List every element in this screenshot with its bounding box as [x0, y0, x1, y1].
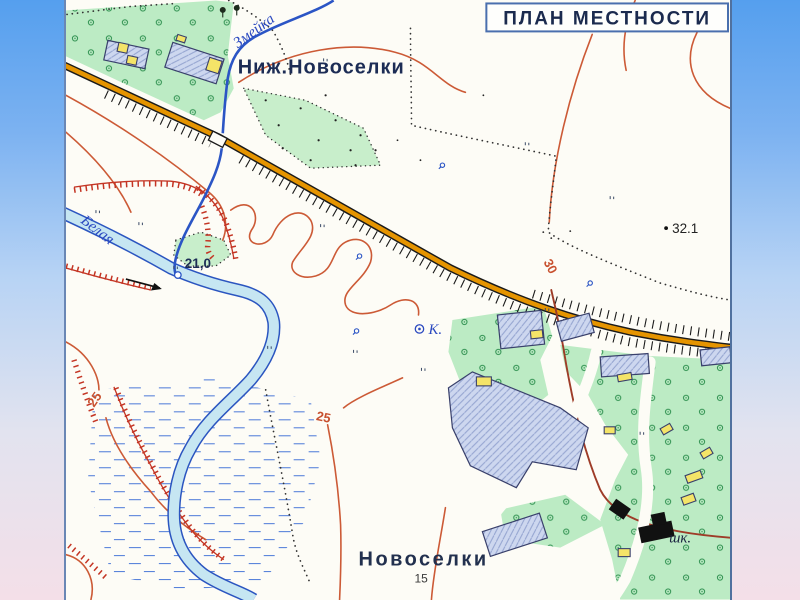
title-box: ПЛАН МЕСТНОСТИ [486, 3, 728, 31]
topographic-map: Ниж.Новоселки Новоселки 15 Белая Змейка … [64, 0, 732, 600]
house-count-label: 15 [414, 572, 428, 586]
spot-height-dot [664, 226, 668, 230]
map-title: ПЛАН МЕСТНОСТИ [503, 8, 711, 29]
school-label: шк. [669, 531, 691, 547]
slide-background: Ниж.Новоселки Новоселки 15 Белая Змейка … [0, 0, 800, 600]
water-gauge-icon [175, 272, 182, 279]
settlement-label-upper: Ниж.Новоселки [238, 56, 405, 78]
water-elevation-label: 21,0 [185, 256, 211, 271]
settlement-label-lower: Новоселки [359, 549, 489, 571]
contour-label-25-center: 25 [315, 408, 332, 426]
map-canvas: Ниж.Новоселки Новоселки 15 Белая Змейка … [66, 0, 730, 600]
well-label: К. [427, 322, 442, 338]
spot-height-label: 32.1 [672, 221, 698, 236]
